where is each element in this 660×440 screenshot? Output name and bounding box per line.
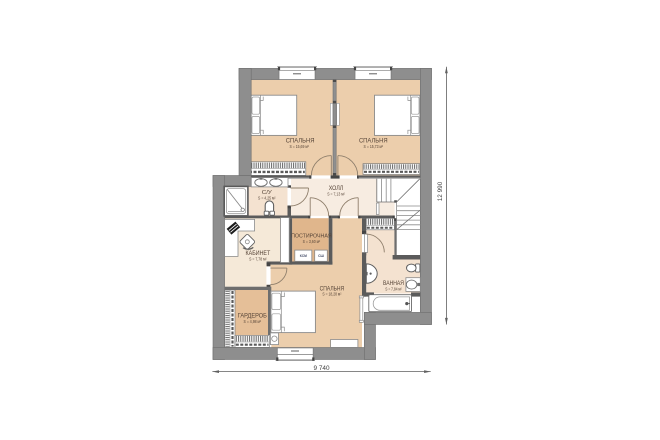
svg-text:9 740: 9 740 xyxy=(314,365,330,372)
svg-text:S = 15,73 м²: S = 15,73 м² xyxy=(364,144,384,149)
svg-text:S = 15,69 м²: S = 15,69 м² xyxy=(289,144,309,149)
svg-text:S = 4,25 м²: S = 4,25 м² xyxy=(258,195,276,200)
svg-text:S = 7,13 м²: S = 7,13 м² xyxy=(327,191,345,196)
svg-text:СШ: СШ xyxy=(318,254,324,258)
svg-text:12 990: 12 990 xyxy=(437,181,444,201)
svg-text:S = 7,78 м²: S = 7,78 м² xyxy=(249,256,267,261)
svg-text:КСМ: КСМ xyxy=(300,254,307,258)
svg-text:S = 4,98 м²: S = 4,98 м² xyxy=(244,319,262,324)
svg-text:S = 7,84 м²: S = 7,84 м² xyxy=(385,286,402,291)
svg-text:S = 3,60 м²: S = 3,60 м² xyxy=(303,239,321,244)
svg-text:S = 18,28 м²: S = 18,28 м² xyxy=(322,292,342,297)
